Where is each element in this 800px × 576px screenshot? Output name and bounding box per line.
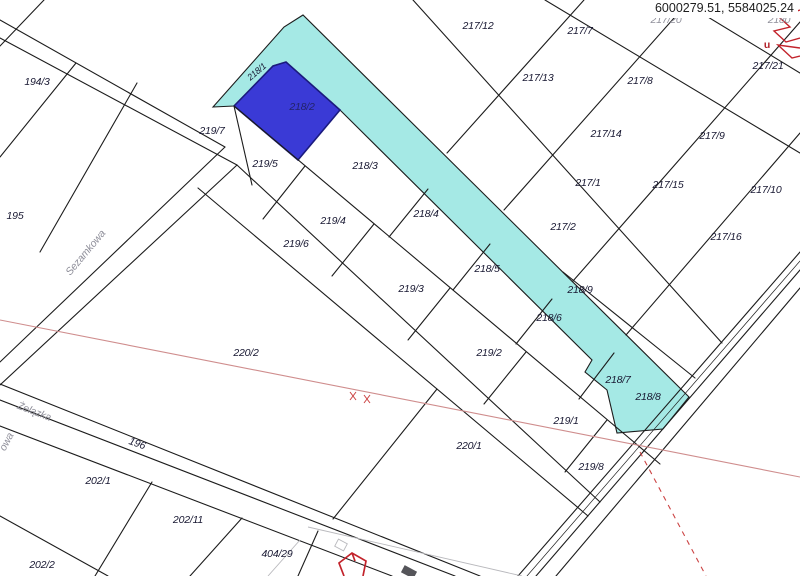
gray-detail-lines <box>268 527 522 576</box>
cadastral-geometry <box>0 0 800 576</box>
red-line-ticks <box>350 392 370 403</box>
parcel-boundaries <box>0 0 800 576</box>
map-canvas[interactable]: 194/3195217/12217/7217/13217/8217/21217/… <box>0 0 800 576</box>
red-dashed-line <box>640 452 706 576</box>
coordinate-readout: 6000279.51, 5584025.24 <box>645 0 798 18</box>
small-building-footprint <box>401 565 417 576</box>
